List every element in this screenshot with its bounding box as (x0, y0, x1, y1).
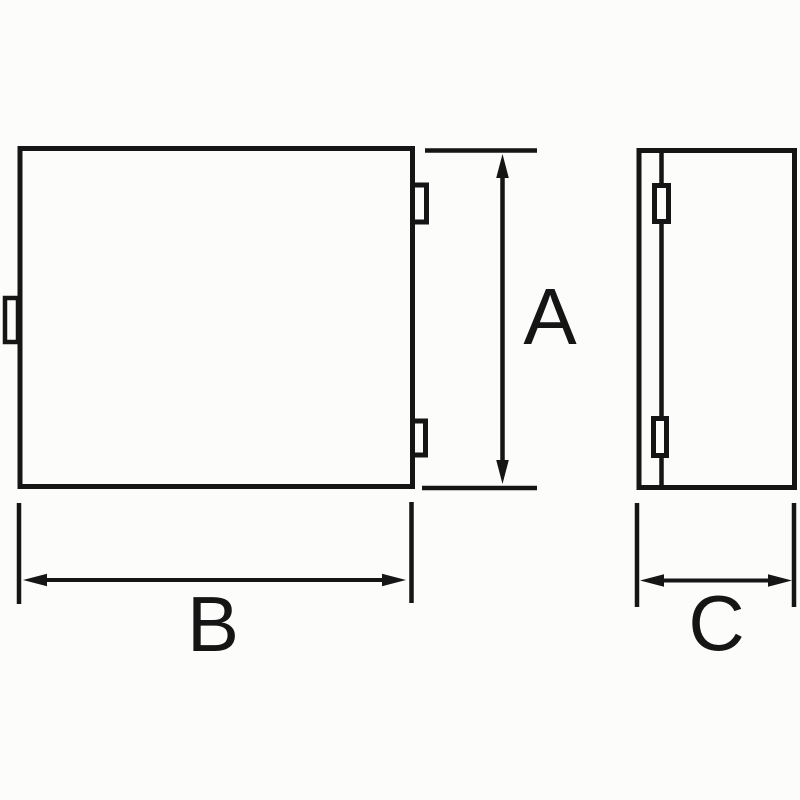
svg-text:A: A (523, 272, 577, 361)
svg-text:C: C (688, 579, 744, 667)
svg-text:B: B (187, 580, 239, 668)
